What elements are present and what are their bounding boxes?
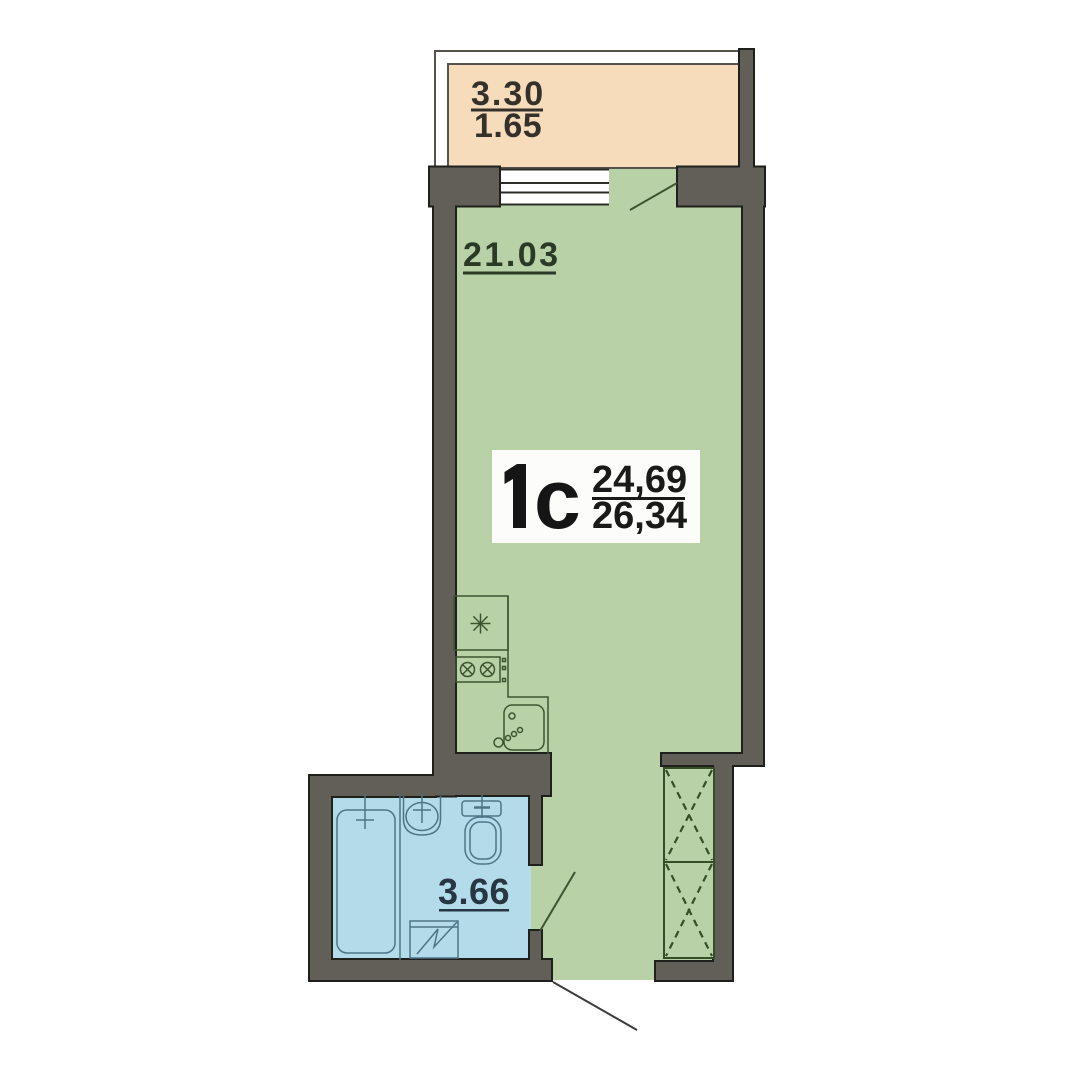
- svg-text:1.65: 1.65: [474, 107, 542, 145]
- svg-text:c: c: [534, 452, 581, 546]
- svg-text:26,34: 26,34: [592, 495, 687, 537]
- svg-text:3.66: 3.66: [438, 871, 510, 912]
- svg-text:21.03: 21.03: [463, 236, 561, 274]
